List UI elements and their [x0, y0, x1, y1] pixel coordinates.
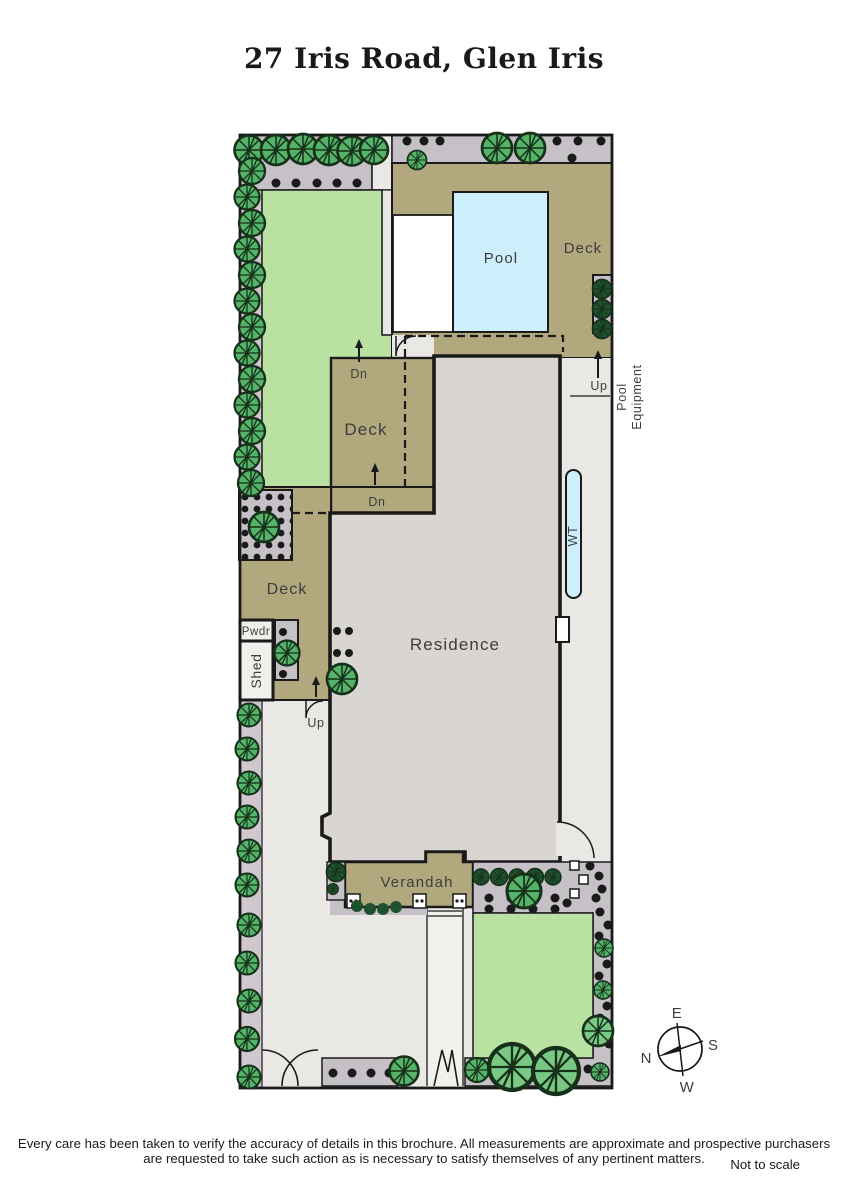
scale-note: Not to scale — [730, 1157, 800, 1172]
tree-icon — [465, 1058, 489, 1082]
shrub-icon — [593, 280, 612, 299]
tree-icon — [275, 641, 300, 666]
tree-icon — [482, 133, 512, 163]
paved-terrace — [393, 215, 453, 332]
shrub-icon — [593, 320, 612, 339]
compass-w: W — [680, 1079, 695, 1096]
tree-icon — [235, 289, 260, 314]
tree-icon — [238, 704, 261, 727]
tree-icon — [239, 158, 265, 184]
tree-icon — [236, 806, 259, 829]
tree-icon — [236, 738, 259, 761]
tree-icon — [235, 445, 260, 470]
tree-icon — [390, 1057, 419, 1086]
pool-equipment-label: Equipment — [630, 364, 644, 429]
tree-icon — [235, 341, 260, 366]
side-path — [560, 358, 612, 862]
pwdr-label: Pwdr — [242, 626, 271, 638]
tree-icon — [591, 1063, 609, 1081]
tree-icon — [261, 135, 291, 165]
pool-deck-zone — [392, 163, 612, 380]
tree-icon — [249, 512, 279, 542]
shrub-icon — [328, 884, 339, 895]
pool-label: Pool — [484, 250, 518, 267]
pool-equipment-label: Pool — [615, 383, 629, 410]
tree-icon — [594, 981, 612, 999]
brochure-page: 27 Iris Road, Glen Iris — [0, 0, 848, 1200]
tree-icon — [515, 133, 545, 163]
tree-icon — [533, 1048, 579, 1094]
tree-icon — [489, 1044, 535, 1090]
compass: E N S W — [641, 1005, 719, 1096]
tree-icon — [238, 840, 261, 863]
verandah-label: Verandah — [380, 874, 453, 891]
window-bay — [556, 617, 569, 642]
tree-icon — [235, 237, 260, 262]
tree-icon — [235, 393, 260, 418]
disclaimer-line-1: Every care has been taken to verify the … — [0, 1136, 848, 1151]
disclaimer-line-2: are requested to take such action as is … — [0, 1151, 848, 1166]
compass-north-pointer — [657, 1045, 681, 1057]
site-plan: Pool Deck Deck Deck Residence Verandah P… — [0, 0, 848, 1200]
deck-label: Deck — [564, 240, 603, 257]
shrub-icon — [473, 869, 489, 885]
door-opening — [556, 822, 564, 856]
shrub-icon — [327, 863, 346, 882]
up-label: Up — [307, 716, 324, 730]
tree-icon — [408, 151, 427, 170]
tree-icon — [327, 664, 357, 694]
tree-icon — [583, 1016, 613, 1046]
deck-label: Deck — [267, 581, 308, 598]
shed-label: Shed — [248, 653, 264, 688]
tree-icon — [507, 874, 541, 908]
tree-icon — [238, 1066, 261, 1089]
tree-icon — [235, 185, 260, 210]
tree-icon — [238, 914, 261, 937]
down-label: Dn — [350, 367, 367, 381]
shrub-icon — [593, 300, 612, 319]
tree-icon — [235, 1027, 259, 1051]
tree-icon — [236, 874, 259, 897]
tree-icon — [360, 136, 388, 164]
residence-label: Residence — [410, 635, 500, 654]
front-lawn — [473, 913, 593, 1058]
walkway — [382, 190, 392, 335]
up-label: Up — [590, 379, 607, 393]
water-tank-label: WT — [566, 526, 580, 547]
down-label: Dn — [368, 495, 385, 509]
compass-e: E — [672, 1005, 683, 1022]
tree-icon — [238, 470, 264, 496]
compass-s: S — [708, 1037, 719, 1054]
compass-n: N — [641, 1050, 652, 1067]
tree-icon — [239, 366, 265, 392]
side-path-zone — [560, 358, 612, 862]
tree-icon — [239, 210, 265, 236]
tree-icon — [239, 314, 265, 340]
shrub-icon — [545, 869, 561, 885]
tree-icon — [238, 990, 261, 1013]
tree-icon — [238, 772, 261, 795]
tree-icon — [239, 262, 265, 288]
tree-icon — [595, 939, 613, 957]
tree-icon — [236, 952, 259, 975]
shrub-icon — [491, 869, 508, 886]
tree-icon — [239, 418, 265, 444]
deck-label: Deck — [344, 420, 387, 439]
